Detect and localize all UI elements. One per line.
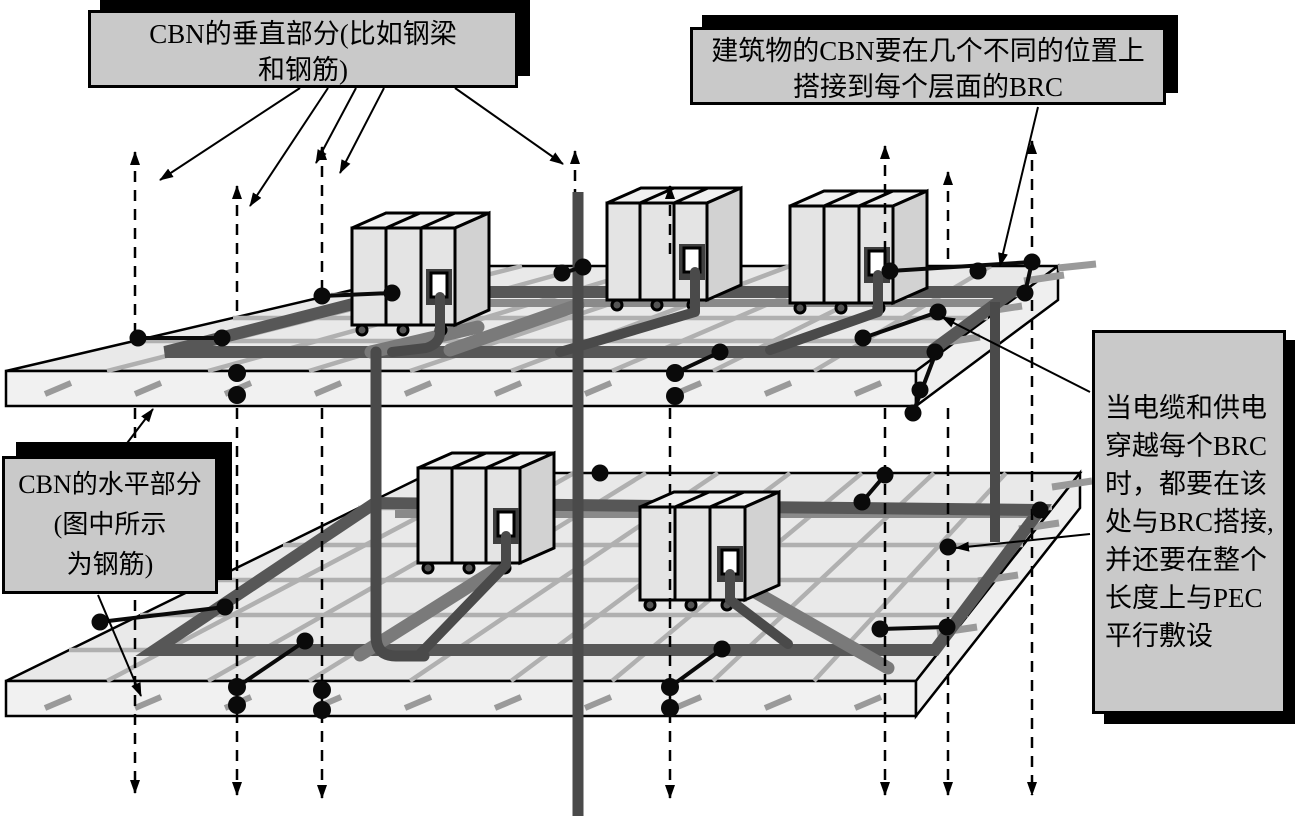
callout-text-line: 处与BRC搭接, bbox=[1105, 503, 1279, 541]
callout-text-line: 平行敷设 bbox=[1105, 617, 1279, 655]
callout-text-line: 为钢筋) bbox=[5, 545, 215, 585]
callout-building-cbn: 建筑物的CBN要在几个不同的位置上 搭接到每个层面的BRC bbox=[690, 27, 1166, 105]
callout-text-line: 穿越每个BRC bbox=[1105, 427, 1279, 465]
upper-floor-slab bbox=[6, 264, 1096, 406]
callout-horizontal-cbn: CBN的水平部分 (图中所示 为钢筋) bbox=[2, 456, 218, 594]
callout-text-line: 并还要在整个 bbox=[1105, 541, 1279, 579]
diagram-page: CBN的垂直部分(比如钢梁 和钢筋) 建筑物的CBN要在几个不同的位置上 搭接到… bbox=[0, 0, 1295, 816]
cabinet-lower-2 bbox=[640, 492, 779, 610]
callout-text-line: 长度上与PEC bbox=[1105, 579, 1279, 617]
callout-text-line: CBN的垂直部分(比如钢梁 bbox=[91, 16, 515, 52]
callout-text-line: (图中所示 bbox=[5, 505, 215, 545]
callout-text-line: 搭接到每个层面的BRC bbox=[693, 69, 1163, 105]
callout-text-line: 时，都要在该 bbox=[1105, 465, 1279, 503]
callout-text-line: CBN的水平部分 bbox=[5, 465, 215, 505]
callout-vertical-cbn: CBN的垂直部分(比如钢梁 和钢筋) bbox=[88, 10, 518, 88]
callout-text-line: 当电缆和供电 bbox=[1105, 389, 1279, 427]
cabinet-lower-1 bbox=[418, 453, 554, 573]
cabinet-upper-1 bbox=[352, 213, 489, 335]
callout-cable-bonding: 当电缆和供电 穿越每个BRC 时，都要在该 处与BRC搭接, 并还要在整个 长度… bbox=[1092, 330, 1286, 714]
cabinet-upper-3 bbox=[790, 191, 927, 313]
callout-text-line: 建筑物的CBN要在几个不同的位置上 bbox=[693, 33, 1163, 69]
callout-text-line: 和钢筋) bbox=[91, 52, 515, 88]
cabinet-upper-2 bbox=[607, 188, 741, 310]
